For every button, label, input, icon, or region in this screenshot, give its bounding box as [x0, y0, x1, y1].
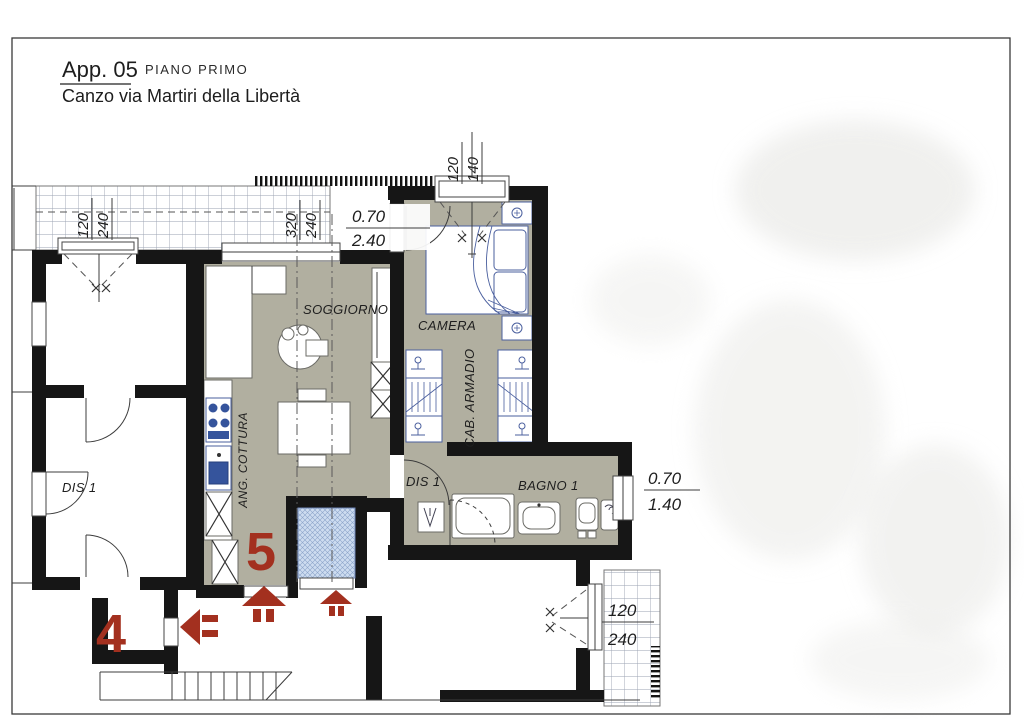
apt4-entrance-arrow-icon: [180, 609, 218, 645]
svg-text:120: 120: [608, 601, 637, 620]
svg-text:1.40: 1.40: [648, 495, 682, 514]
scanned-floor-plan-page: App. 05 PIANO PRIMO Canzo via Martiri de…: [0, 0, 1024, 724]
elevator-arrow-icon: [320, 590, 352, 616]
elevator-door-sill: [300, 578, 353, 589]
dim-bath-window: 0.70 1.40: [644, 469, 700, 514]
svg-text:120: 120: [445, 156, 462, 182]
double-bed: [426, 226, 528, 314]
balcony-window: [546, 584, 602, 650]
floor-plan-drawing: App. 05 PIANO PRIMO Canzo via Martiri de…: [0, 0, 1024, 724]
living-window: [222, 243, 340, 261]
address-line: Canzo via Martiri della Libertà: [62, 86, 301, 106]
hatch-strip-top: [255, 176, 461, 186]
wardrobe-left: [406, 350, 442, 442]
washbasin: [418, 502, 444, 532]
stove: [206, 398, 231, 442]
nightstand: [502, 202, 532, 224]
apartment-title: App. 05: [62, 57, 138, 82]
label-bagno: BAGNO 1: [518, 478, 579, 493]
unit-number-4: 4: [96, 604, 126, 664]
svg-text:240: 240: [607, 630, 637, 649]
label-ang-cottura: ANG. COTTURA: [236, 412, 250, 508]
svg-text:2.40: 2.40: [351, 231, 386, 250]
wardrobe-right: [498, 350, 534, 442]
terrace-window: [58, 238, 138, 302]
apt4-entry-door: [164, 618, 178, 646]
title-block: App. 05 PIANO PRIMO Canzo via Martiri de…: [60, 57, 301, 106]
elevator: [286, 496, 367, 589]
svg-text:240: 240: [95, 212, 112, 239]
label-soggiorno: SOGGIORNO: [303, 302, 388, 317]
svg-text:320: 320: [283, 212, 300, 238]
cab-dis-passage: [404, 442, 447, 456]
dim-bedroom-door: 0.70 2.40: [342, 204, 430, 250]
label-camera: CAMERA: [418, 318, 476, 333]
svg-text:140: 140: [465, 156, 482, 182]
label-dis-apt5: DIS 1: [406, 474, 441, 489]
hatch-strip-balcony: [651, 646, 660, 700]
svg-text:120: 120: [75, 212, 92, 238]
floor-label: PIANO PRIMO: [145, 62, 248, 77]
apt4-door-swings: [32, 302, 130, 577]
bath-sink: [518, 502, 560, 534]
bath-window: [613, 476, 633, 520]
svg-text:0.70: 0.70: [352, 207, 386, 226]
nightstand: [502, 316, 532, 340]
label-dis-apt4: DIS 1: [62, 480, 97, 495]
svg-text:0.70: 0.70: [648, 469, 682, 488]
unit-number-5: 5: [246, 522, 276, 582]
bathtub: [452, 494, 514, 538]
kitchen-sink: [206, 446, 231, 490]
svg-text:240: 240: [303, 212, 320, 239]
label-cab-armadio: CAB. ARMADIO: [462, 349, 477, 448]
